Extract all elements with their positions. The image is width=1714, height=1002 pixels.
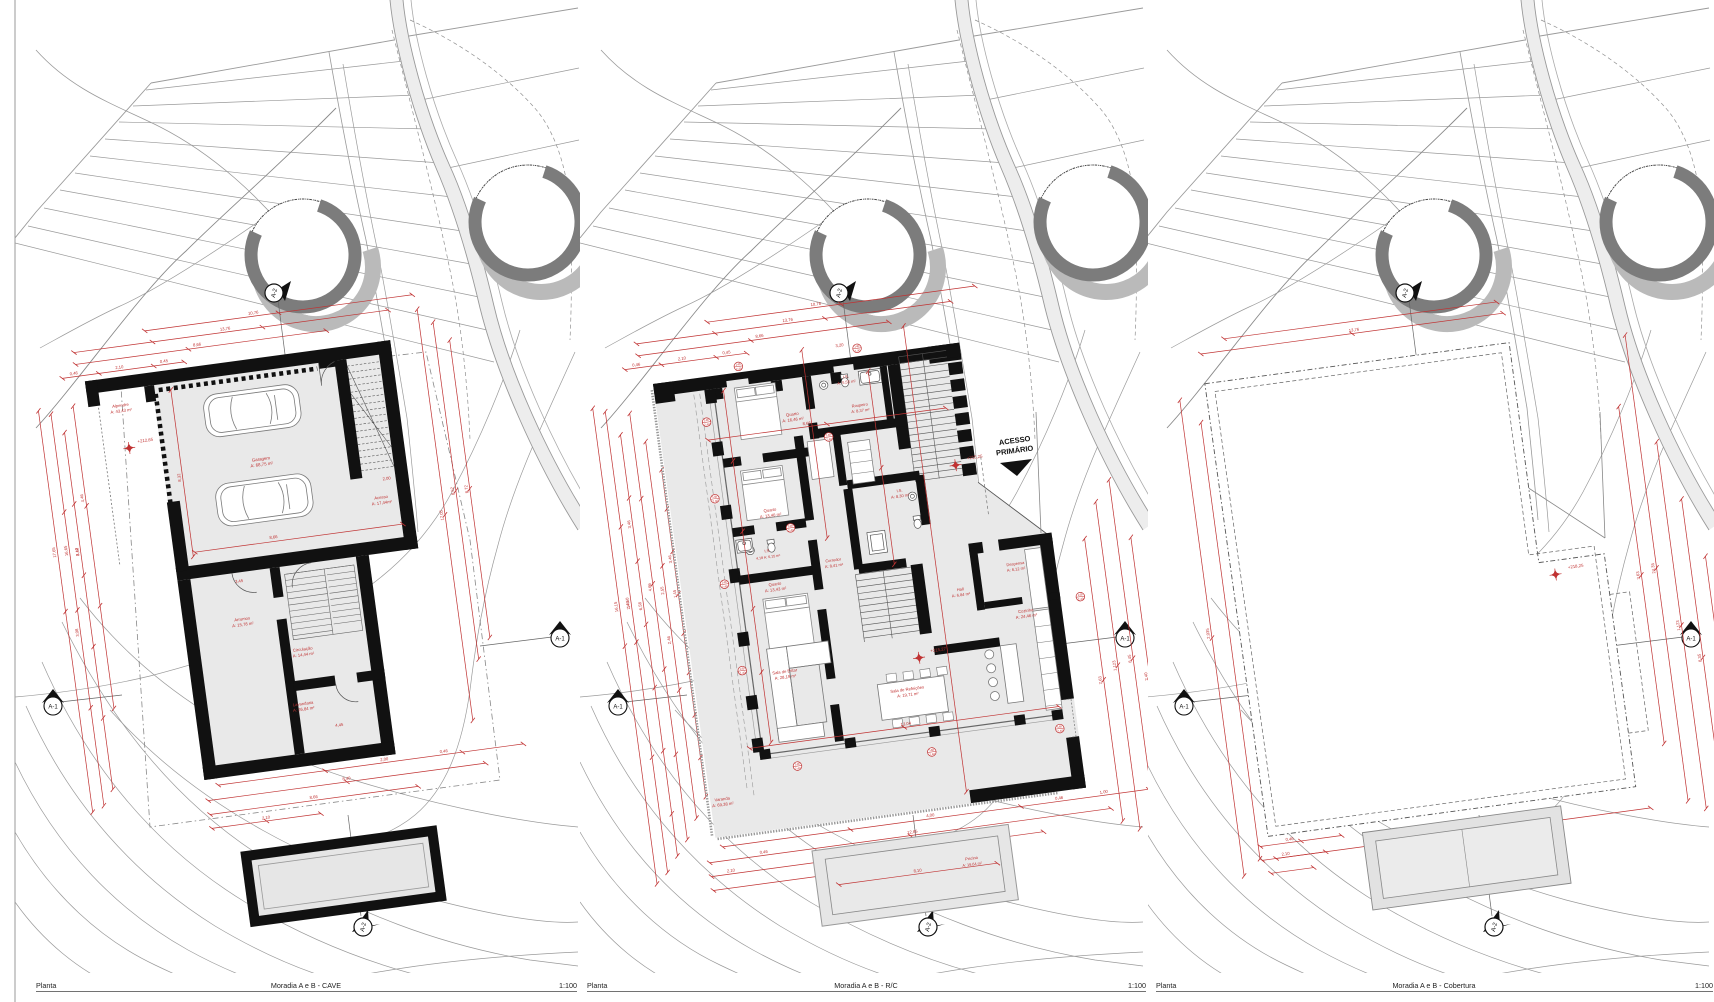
svg-text:2,40: 2,40 (788, 528, 795, 533)
svg-text:Planta: Planta (587, 981, 607, 990)
svg-text:2,40: 2,40 (712, 499, 719, 504)
svg-text:2,40: 2,40 (722, 584, 729, 589)
svg-text:2,40: 2,40 (739, 671, 746, 676)
svg-text:Moradia A e B - Cobertura: Moradia A e B - Cobertura (1392, 981, 1475, 990)
svg-text:2,40: 2,40 (854, 348, 861, 353)
svg-text:2,40: 2,40 (736, 366, 743, 371)
svg-text:2,40: 2,40 (1057, 729, 1064, 734)
svg-text:2,40: 2,40 (795, 766, 802, 771)
svg-text:Moradia A e B - R/C: Moradia A e B - R/C (834, 981, 898, 990)
svg-text:2,40: 2,40 (826, 437, 833, 442)
svg-text:A-1: A-1 (1179, 705, 1189, 711)
svg-text:1:100: 1:100 (559, 981, 577, 990)
svg-text:Planta: Planta (36, 981, 56, 990)
svg-text:I.S.: I.S. (764, 548, 771, 554)
svg-text:A-1: A-1 (1120, 637, 1130, 643)
svg-text:2,40: 2,40 (1078, 597, 1085, 602)
svg-text:1:100: 1:100 (1695, 981, 1713, 990)
svg-text:A-1: A-1 (1686, 637, 1696, 643)
svg-text:Moradia A e B - CAVE: Moradia A e B - CAVE (271, 981, 341, 990)
svg-text:A-1: A-1 (613, 705, 623, 711)
svg-text:2,40: 2,40 (704, 422, 711, 427)
svg-text:2,40: 2,40 (929, 752, 936, 757)
svg-text:1:100: 1:100 (1128, 981, 1146, 990)
svg-text:Planta: Planta (1156, 981, 1176, 990)
